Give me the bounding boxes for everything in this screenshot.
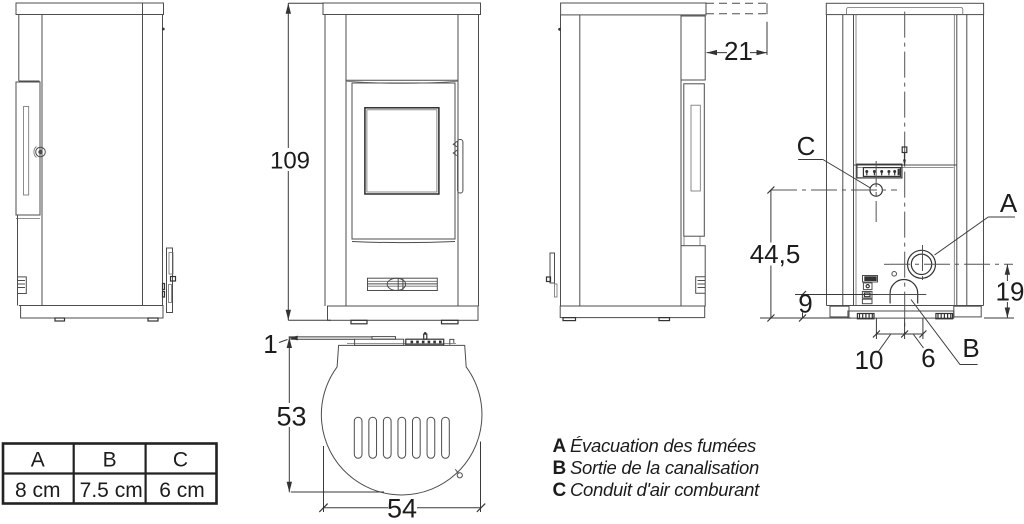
svg-text:B: B	[553, 458, 567, 479]
svg-text:53: 53	[276, 402, 306, 432]
svg-text:Conduit d'air comburant: Conduit d'air comburant	[570, 479, 760, 500]
svg-text:Évacuation des fumées: Évacuation des fumées	[570, 435, 756, 456]
svg-text:21: 21	[724, 36, 753, 66]
svg-text:8 cm: 8 cm	[15, 479, 61, 502]
svg-text:1: 1	[263, 329, 277, 359]
svg-text:C: C	[173, 449, 188, 472]
svg-text:6 cm: 6 cm	[159, 479, 205, 502]
svg-text:C: C	[553, 480, 567, 501]
svg-text:19: 19	[996, 277, 1024, 307]
svg-text:9: 9	[798, 289, 812, 319]
svg-text:Sortie de la canalisation: Sortie de la canalisation	[570, 457, 759, 478]
svg-text:6: 6	[921, 343, 935, 373]
svg-text:C: C	[797, 131, 816, 161]
svg-text:A: A	[31, 449, 45, 472]
svg-text:44,5: 44,5	[750, 239, 801, 269]
svg-text:7.5 cm: 7.5 cm	[80, 479, 143, 502]
svg-text:10: 10	[855, 345, 884, 375]
svg-text:B: B	[962, 333, 979, 363]
svg-text:A: A	[553, 436, 567, 457]
svg-text:A: A	[1000, 188, 1018, 218]
svg-text:109: 109	[270, 148, 310, 175]
svg-text:B: B	[103, 449, 117, 472]
svg-text:54: 54	[387, 494, 417, 524]
